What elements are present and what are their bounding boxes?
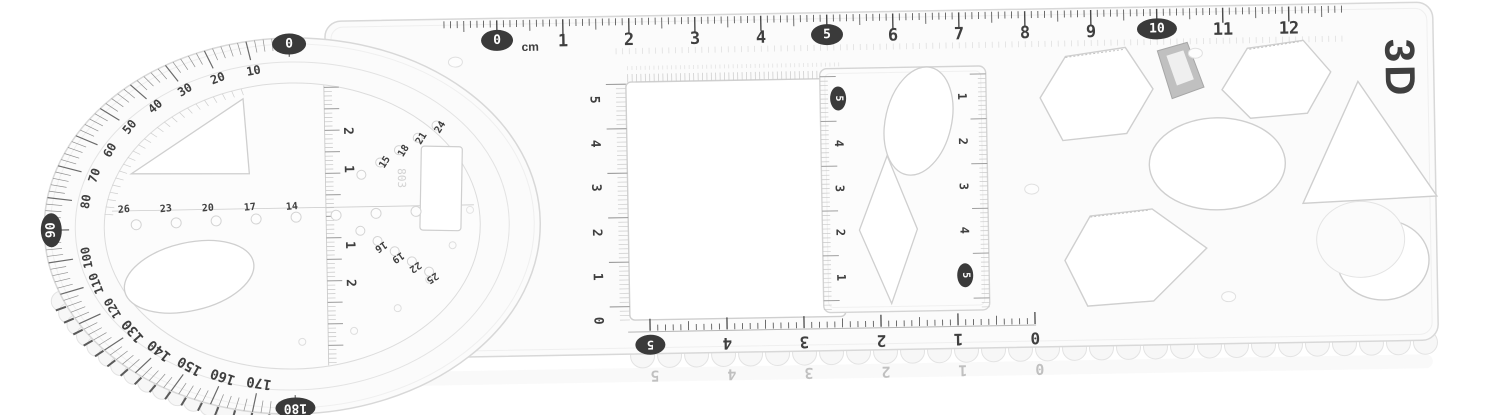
- dimple-hole: [1222, 292, 1236, 302]
- hole-dot: [291, 212, 301, 222]
- slot-cutout: [420, 146, 462, 231]
- hole-dot: [390, 247, 399, 256]
- hole-dot: [331, 210, 341, 220]
- hole-dot: [171, 218, 181, 228]
- hole-dot: [371, 208, 381, 218]
- hole-dot: [376, 158, 385, 167]
- hole-dot: [425, 267, 434, 276]
- square-window-cutout: [626, 78, 846, 320]
- hole-dot: [131, 220, 141, 230]
- hole-dot: [357, 170, 366, 179]
- ruler-graphics: [0, 0, 1500, 415]
- ruler-board: cm 3D 803 012345678910111201020304050607…: [0, 0, 1500, 415]
- hole-dot: [251, 214, 261, 224]
- dimple-hole: [1188, 48, 1202, 58]
- dimple-hole: [1025, 184, 1039, 194]
- hole-dot: [411, 206, 421, 216]
- crescent-cover: [1316, 201, 1405, 279]
- hole-dot: [407, 257, 416, 266]
- product-photo: cm 3D 803 012345678910111201020304050607…: [0, 0, 1500, 415]
- hole-dot: [373, 236, 382, 245]
- dimple-hole: [448, 57, 462, 67]
- hole-dot: [413, 133, 422, 142]
- degree-tick: [44, 223, 60, 224]
- hole-dot: [432, 121, 441, 130]
- hole-dot: [211, 216, 221, 226]
- hole-dot: [356, 226, 365, 235]
- hole-dot: [394, 146, 403, 155]
